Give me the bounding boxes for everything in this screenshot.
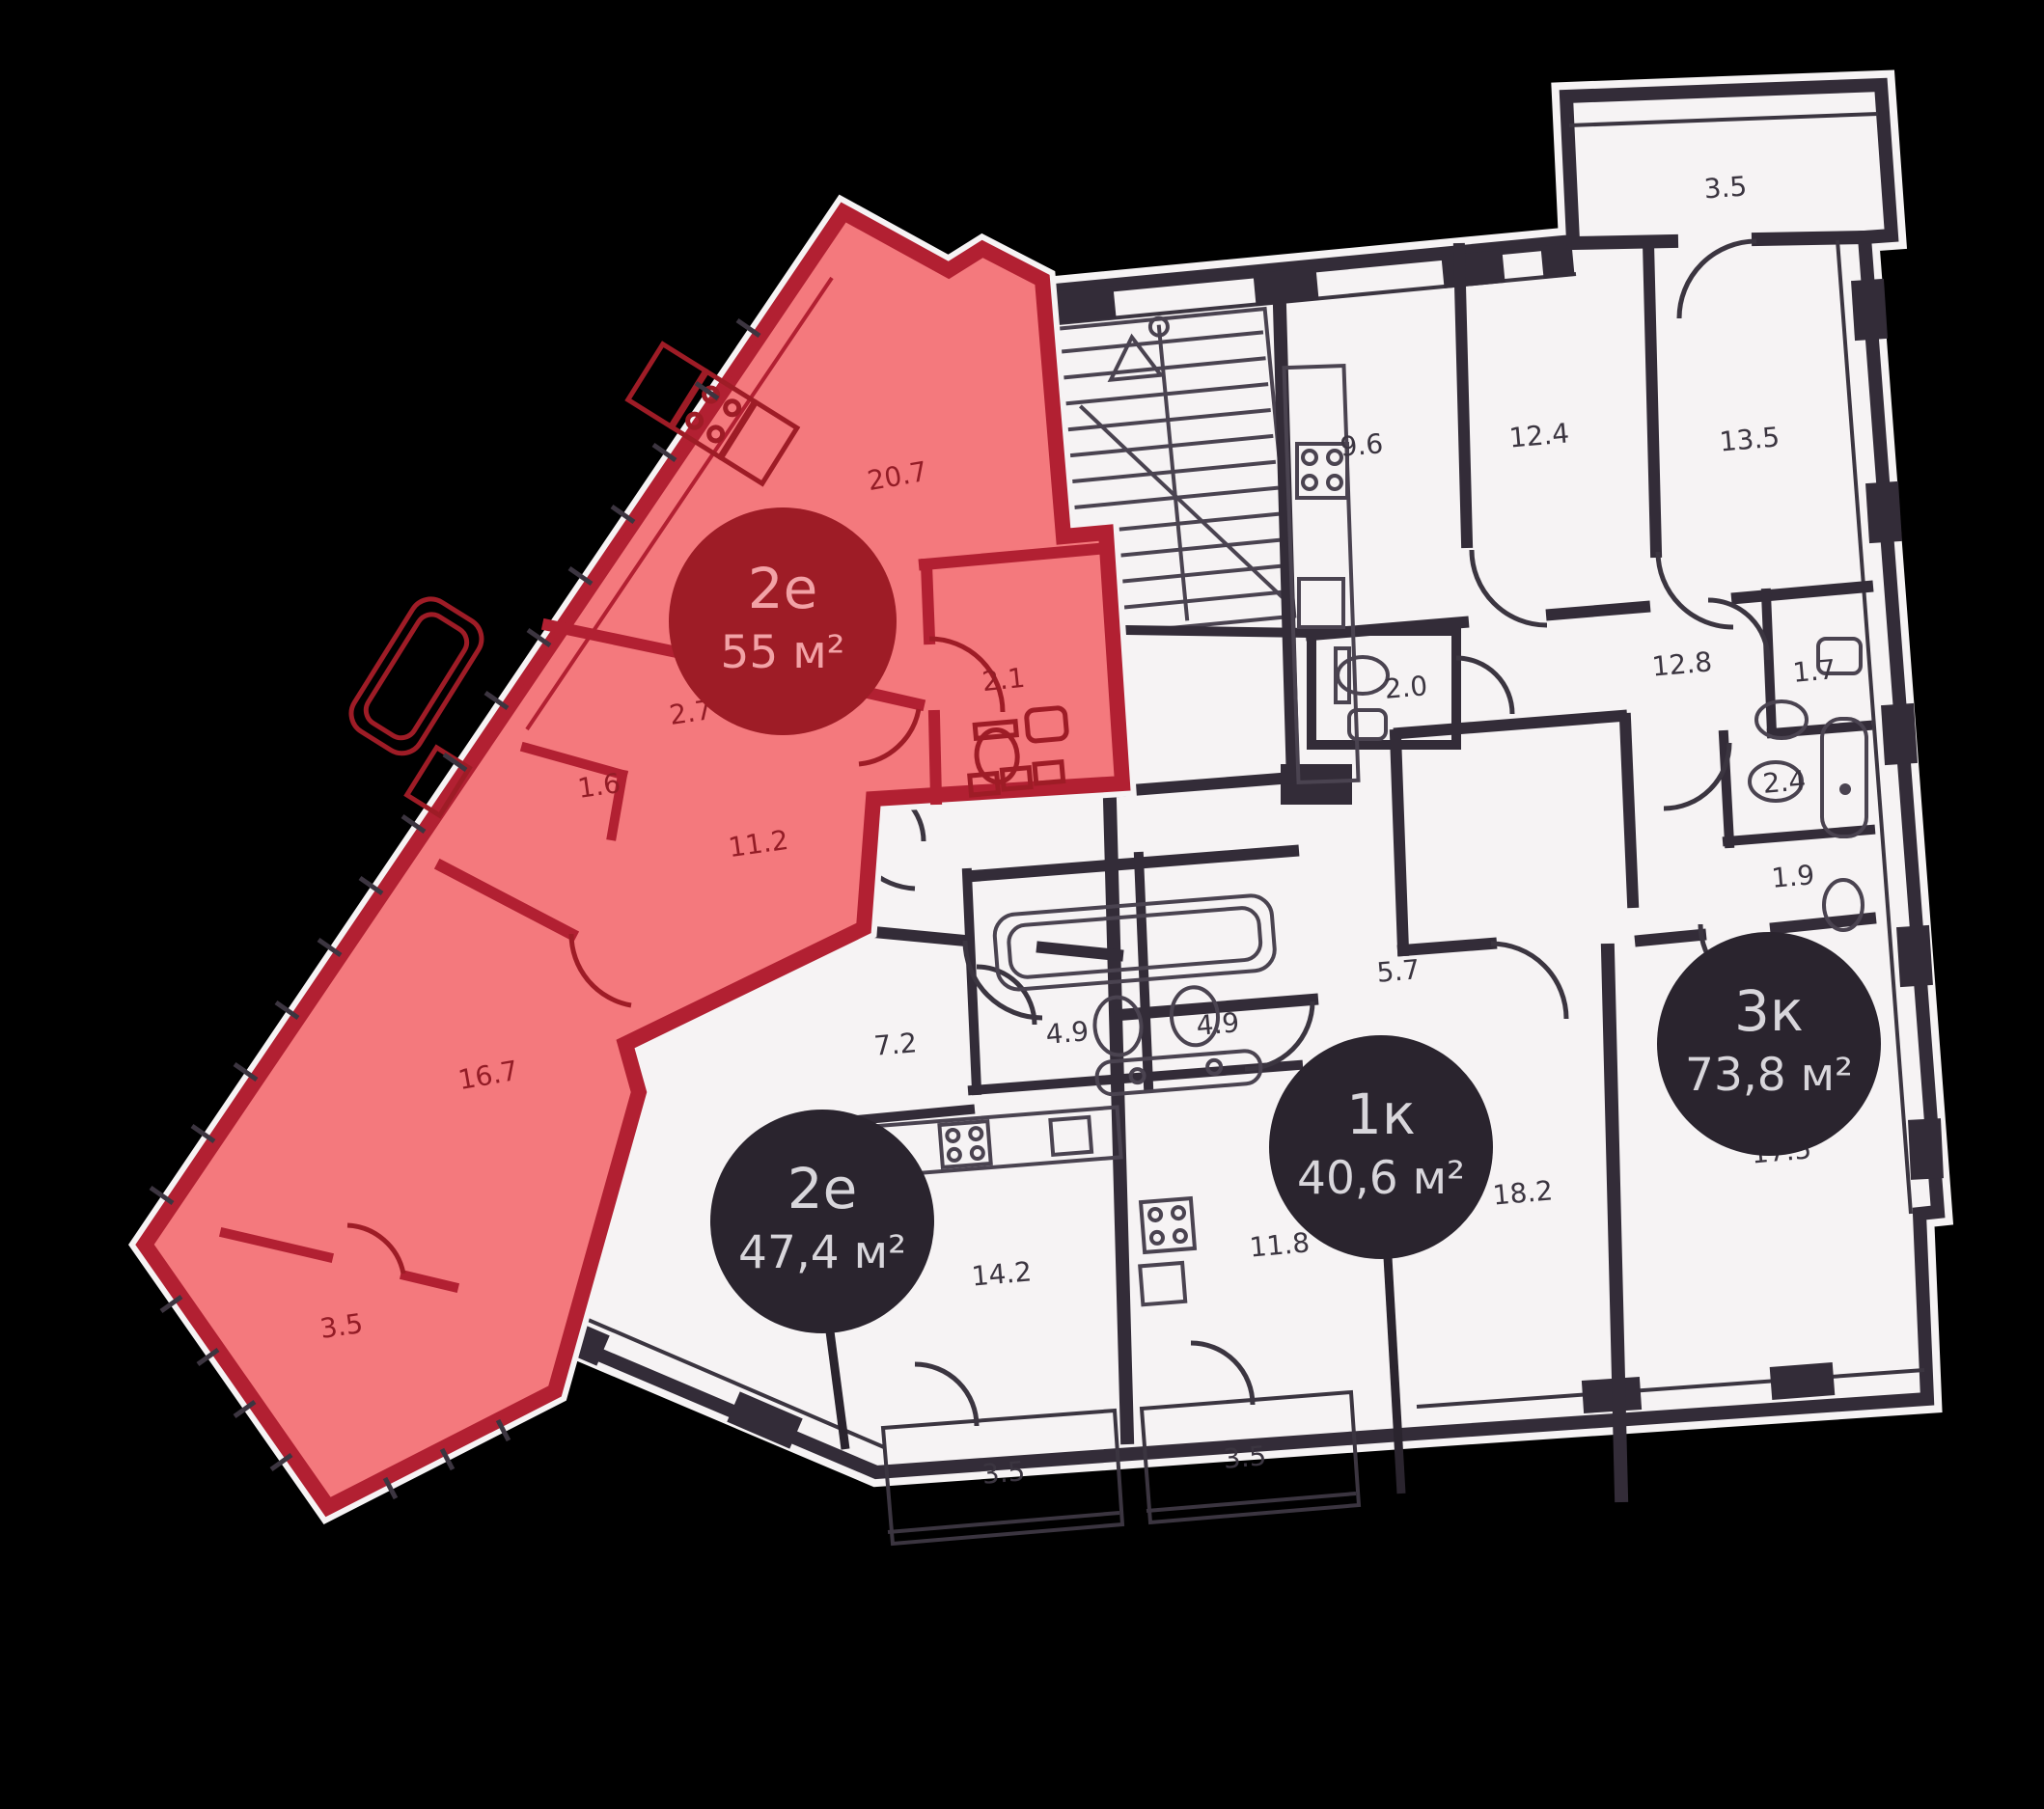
room-area-label: 3.5 bbox=[981, 1455, 1026, 1491]
wall-pillar bbox=[1882, 482, 1886, 542]
wall bbox=[934, 716, 936, 799]
wall bbox=[1403, 944, 1491, 950]
apartment-badge-2e-47[interactable]: 2е 47,4 м² bbox=[710, 1110, 934, 1333]
room-area-label: 4.9 bbox=[1044, 1015, 1090, 1051]
badge-type: 2е bbox=[748, 556, 818, 621]
balcony-wall bbox=[1758, 237, 1864, 239]
room-area-label: 12.8 bbox=[1650, 645, 1713, 682]
wall-pillar bbox=[1924, 1119, 1927, 1179]
apartment-badge-1k-40[interactable]: 1к 40,6 м² bbox=[1269, 1035, 1493, 1259]
room-area-label: 1.7 bbox=[1791, 653, 1837, 689]
wall bbox=[1395, 735, 1403, 950]
wall-pillar bbox=[1583, 1393, 1641, 1397]
badge-area: 73,8 м² bbox=[1685, 1049, 1853, 1102]
balcony-wall bbox=[1573, 241, 1671, 243]
badge-area: 47,4 м² bbox=[738, 1226, 906, 1279]
room-area-label: 18.2 bbox=[1491, 1174, 1554, 1211]
wall bbox=[926, 564, 929, 639]
room-area-label: 4.9 bbox=[1195, 1006, 1240, 1042]
room-area-label: 1.9 bbox=[1770, 859, 1815, 894]
wall bbox=[1042, 947, 1118, 955]
room-area-label: 11.8 bbox=[1248, 1226, 1311, 1263]
floor-plan-screen: 20.7 2.1 2.7 1.6 11.2 16.7 3.5 3.5 9.6 1… bbox=[0, 0, 2044, 1809]
wall bbox=[1648, 243, 1656, 552]
room-area-label: 12.4 bbox=[1507, 417, 1570, 453]
apartment-badge-3k-73[interactable]: 3к 73,8 м² bbox=[1657, 932, 1881, 1156]
room-area-label: 7.2 bbox=[872, 1027, 918, 1062]
drain bbox=[1839, 783, 1851, 795]
badge-type: 3к bbox=[1734, 978, 1804, 1044]
room-area-label: 3.5 bbox=[1222, 1439, 1267, 1475]
room-area-label: 14.2 bbox=[970, 1255, 1033, 1292]
room-area-label: 3.5 bbox=[318, 1307, 365, 1345]
wall bbox=[1625, 719, 1633, 902]
wall bbox=[1459, 249, 1467, 542]
room-area-label: 3.5 bbox=[1703, 170, 1749, 205]
wall-pillar bbox=[1897, 704, 1901, 764]
apartment-badge-2e-55[interactable]: 2е 55 м² bbox=[669, 507, 897, 735]
wall-pillar bbox=[1913, 926, 1917, 986]
wall bbox=[1552, 607, 1644, 615]
badge-area: 40,6 м² bbox=[1297, 1152, 1465, 1205]
badge-type: 2е bbox=[787, 1156, 858, 1221]
wall-pillar bbox=[1443, 266, 1504, 272]
floor-plan: 20.7 2.1 2.7 1.6 11.2 16.7 3.5 3.5 9.6 1… bbox=[0, 0, 2044, 1809]
room-area-label: 13.5 bbox=[1718, 421, 1781, 457]
room-area-label: 2.0 bbox=[1383, 670, 1428, 705]
wall bbox=[1641, 935, 1700, 941]
room-area-label: 5.7 bbox=[1375, 953, 1421, 989]
room-area-label: 2.4 bbox=[1761, 764, 1807, 800]
wall-pillar bbox=[1542, 260, 1573, 262]
wall bbox=[1766, 593, 1772, 733]
wall-pillar bbox=[1867, 280, 1871, 340]
badge-area: 55 м² bbox=[720, 626, 844, 679]
room-area-label: 1.6 bbox=[575, 767, 622, 805]
room-area-label: 9.6 bbox=[1339, 427, 1384, 463]
wall-pillar bbox=[1255, 284, 1317, 289]
shaft bbox=[1281, 764, 1352, 805]
badge-type: 1к bbox=[1346, 1082, 1416, 1147]
wall-pillar bbox=[1771, 1379, 1834, 1384]
room-area-label: 2.1 bbox=[981, 662, 1027, 698]
